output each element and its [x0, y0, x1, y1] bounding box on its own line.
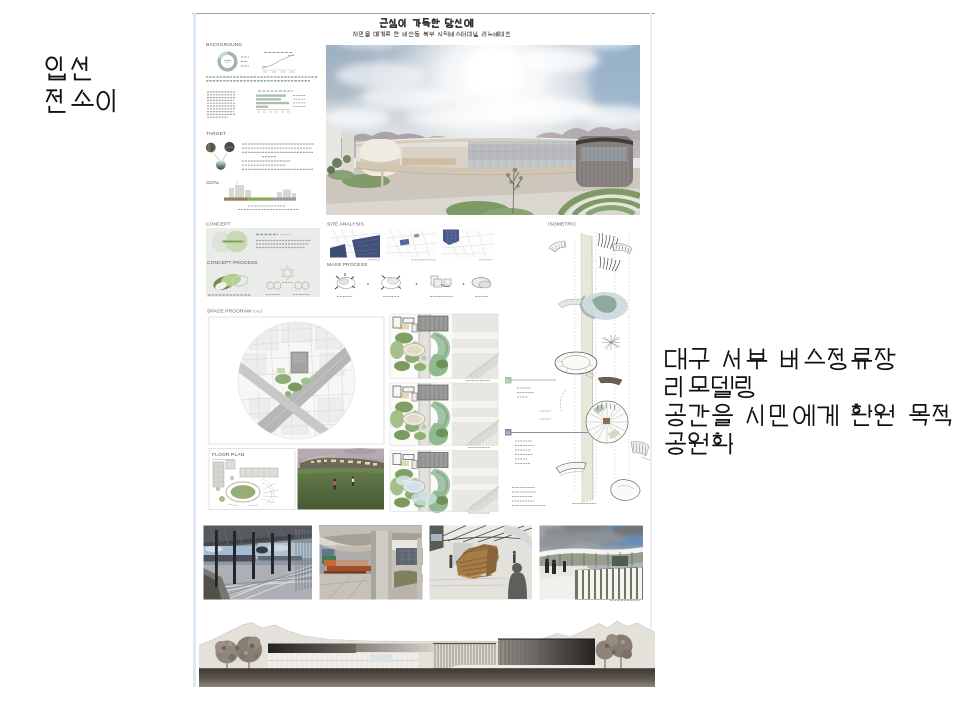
svg-text:CONCEPT PROCESS: CONCEPT PROCESS	[207, 260, 258, 266]
svg-text:FLOOR PLAN: FLOOR PLAN	[212, 452, 245, 458]
svg-text:CONCEPT: CONCEPT	[206, 222, 231, 228]
svg-text:MASS PROCESS: MASS PROCESS	[327, 262, 368, 268]
svg-text:01: 01	[506, 379, 510, 383]
svg-text:ISOMETRIC: ISOMETRIC	[548, 222, 576, 228]
svg-text:GOAL: GOAL	[206, 180, 220, 186]
svg-text:TARGET: TARGET	[206, 131, 226, 137]
svg-text:02: 02	[506, 431, 510, 435]
svg-text:SITE ANALYSIS: SITE ANALYSIS	[327, 222, 364, 228]
svg-text:BACKGROUND: BACKGROUND	[206, 42, 242, 48]
